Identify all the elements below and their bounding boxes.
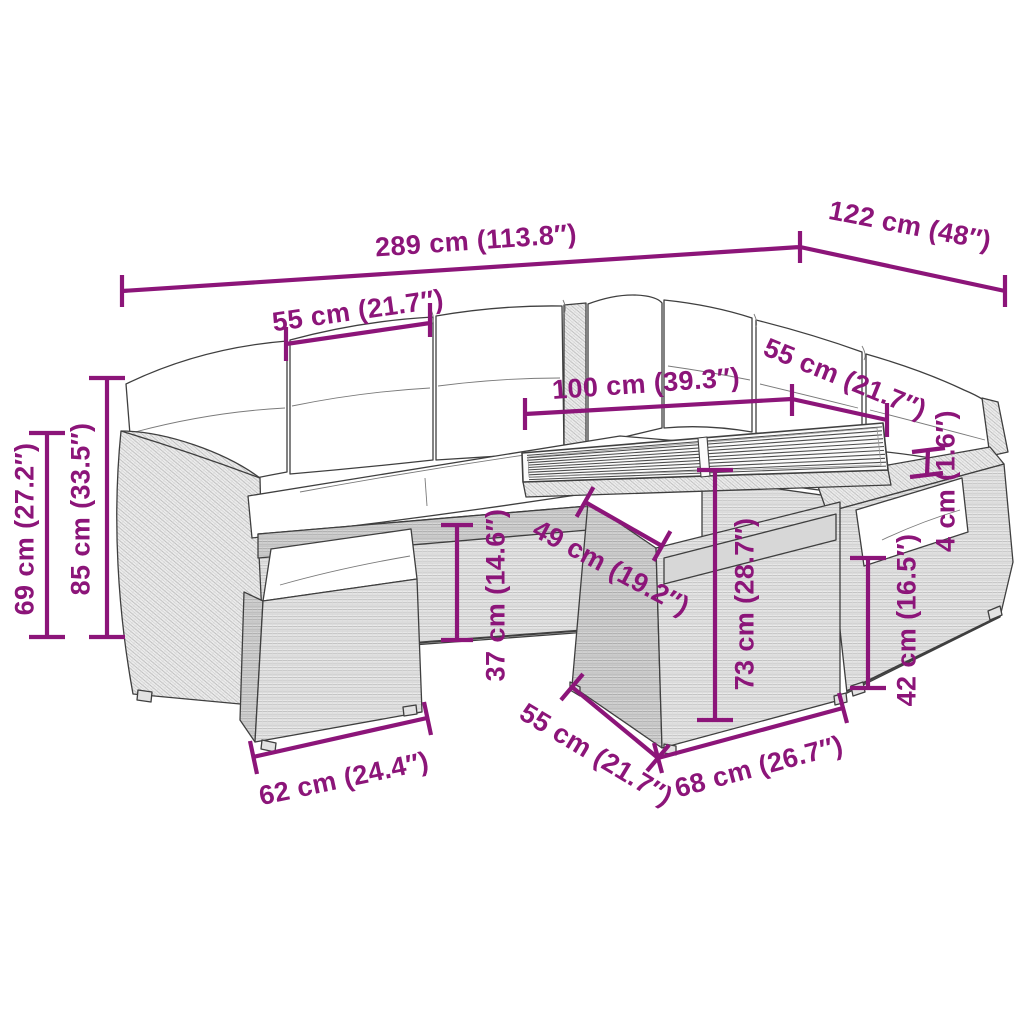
dim-label-table-height: 73 cm (28.7″) [732,518,759,691]
dim-label-base-height: 37 cm (14.6″) [483,509,510,682]
dimension-diagram: 289 cm (113.8″) 122 cm (48″) 55 cm (21.7… [0,0,1024,1024]
furniture-line-art [0,0,1024,1024]
dim-label-arm-front-height: 69 cm (27.2″) [12,443,39,616]
dim-label-back-height: 85 cm (33.5″) [68,423,95,596]
dim-label-armrest-thickness: 4 cm (1.6″) [933,410,960,552]
dim-label-seat-height: 42 cm (16.5″) [894,534,921,707]
